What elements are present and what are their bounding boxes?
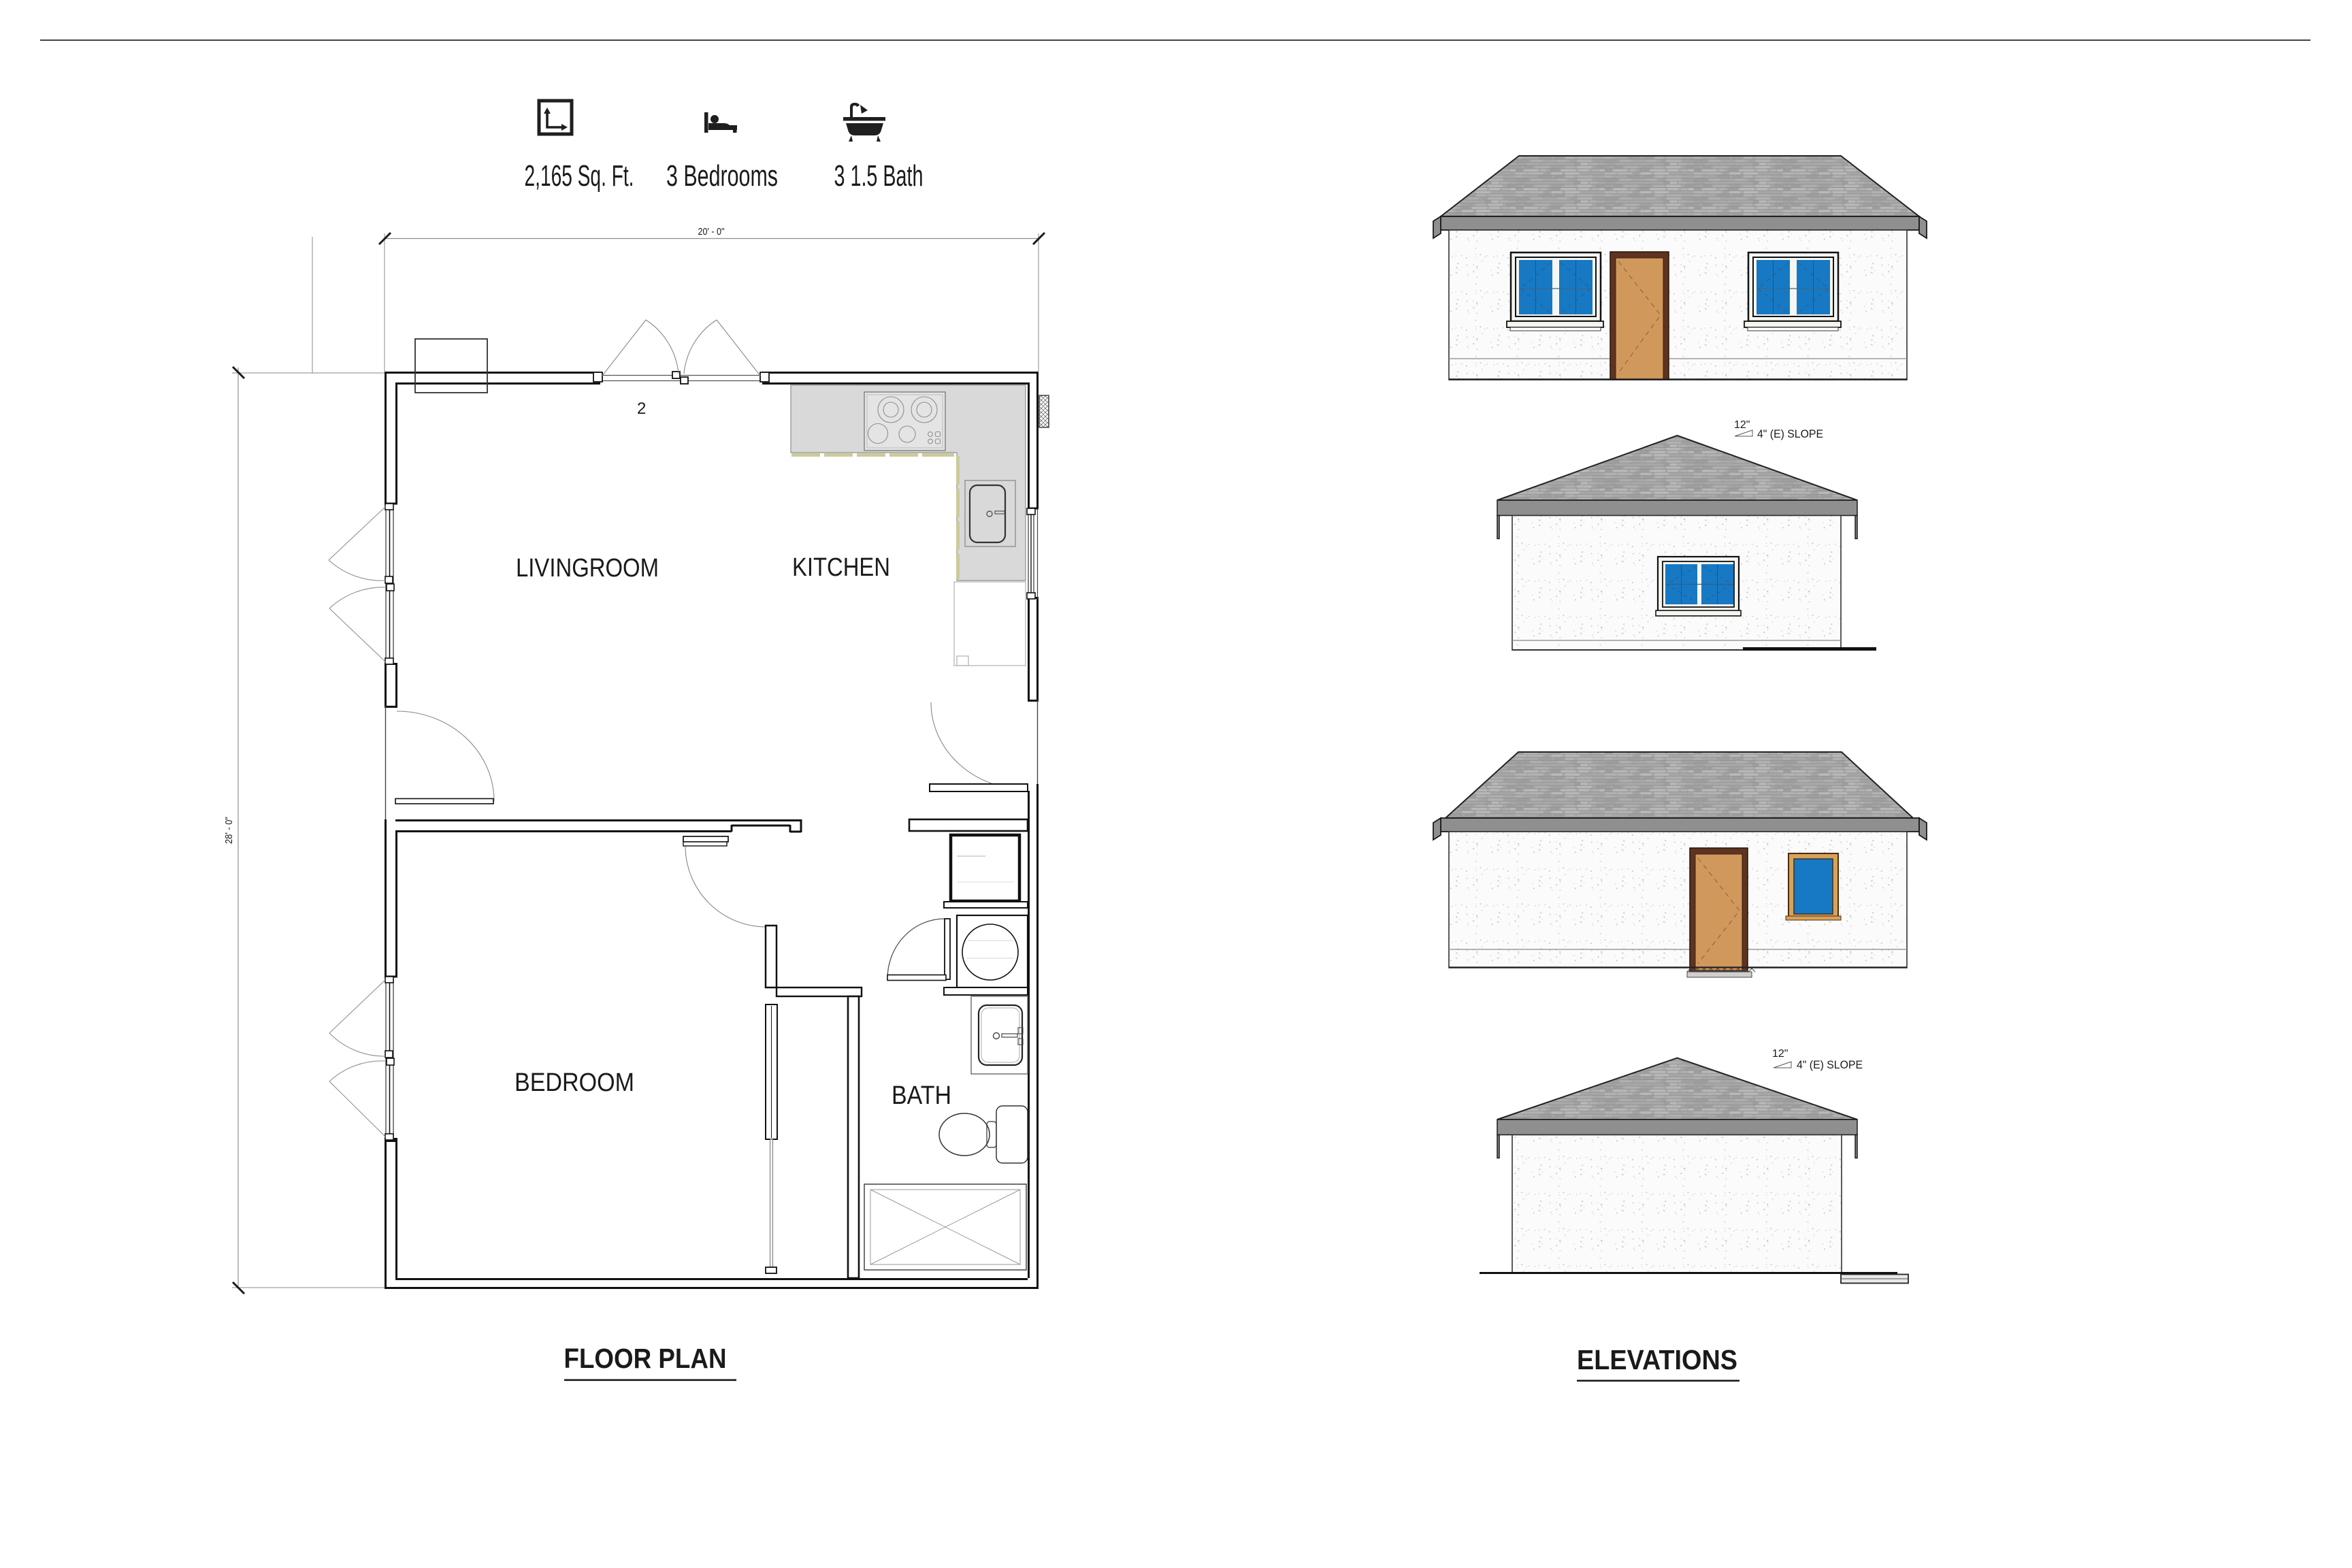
svg-text:ELEVATIONS: ELEVATIONS [1577,1344,1737,1375]
svg-text:3 Bedrooms: 3 Bedrooms [666,159,778,193]
svg-text:12": 12" [1734,419,1750,431]
svg-text:12": 12" [1772,1048,1788,1060]
svg-text:20' - 0": 20' - 0" [698,226,725,238]
svg-text:FLOOR PLAN: FLOOR PLAN [564,1343,727,1374]
svg-text:KITCHEN: KITCHEN [792,553,890,582]
svg-text:4" (E) SLOPE: 4" (E) SLOPE [1797,1058,1863,1071]
svg-text:BATH: BATH [892,1081,951,1110]
svg-text:LIVINGROOM: LIVINGROOM [516,554,659,583]
svg-text:BEDROOM: BEDROOM [514,1068,634,1097]
svg-text:2: 2 [637,399,646,418]
svg-text:28' - 0": 28' - 0" [223,817,235,844]
svg-text:4" (E) SLOPE: 4" (E) SLOPE [1757,427,1823,440]
svg-text:3 1.5 Bath: 3 1.5 Bath [834,159,924,193]
svg-text:2,165 Sq. Ft.: 2,165 Sq. Ft. [525,159,634,193]
